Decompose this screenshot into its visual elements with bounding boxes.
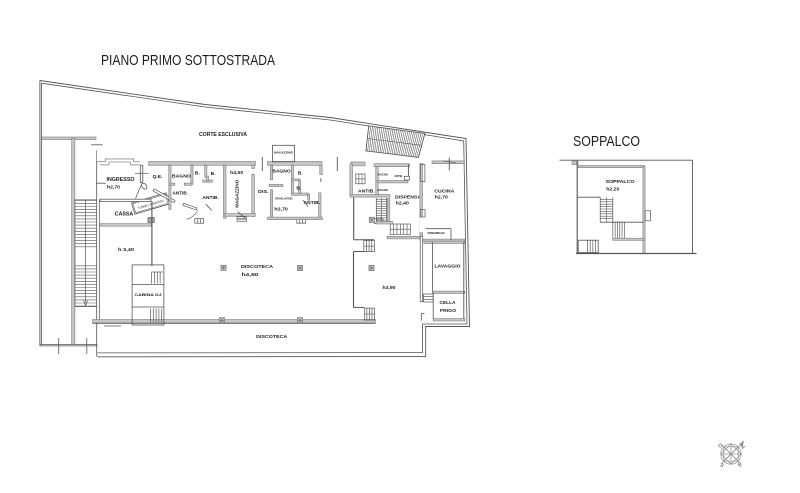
svg-text:h2,70: h2,70 [107,185,120,190]
svg-text:DIS.: DIS. [258,189,269,194]
svg-text:h2,40: h2,40 [396,201,409,206]
svg-text:DISPENSA: DISPENSA [395,194,421,200]
svg-text:ANTIB.: ANTIB. [358,188,375,193]
svg-text:MAGAZZINO: MAGAZZINO [234,179,239,208]
svg-text:SOPPALCO: SOPPALCO [606,179,635,185]
svg-text:BAGNO: BAGNO [377,188,388,192]
svg-text:Q.E.: Q.E. [153,174,163,180]
svg-text:h2,20: h2,20 [606,187,619,192]
svg-text:INGRESSO: INGRESSO [107,177,135,183]
svg-text:SOPPALCO: SOPPALCO [573,133,640,150]
svg-text:h4,50: h4,50 [230,170,243,175]
svg-text:BAGNO: BAGNO [172,173,191,178]
svg-text:B.: B. [211,171,216,176]
svg-text:ANTIB.: ANTIB. [202,195,219,200]
svg-text:CASSA: CASSA [115,212,134,218]
svg-text:h3,90: h3,90 [383,285,396,290]
svg-text:B.: B. [296,186,301,191]
svg-text:h2,70: h2,70 [274,206,288,211]
svg-text:LAVAGGIO: LAVAGGIO [435,263,461,268]
svg-text:h4,50: h4,50 [242,272,260,277]
svg-text:BAGNO: BAGNO [272,169,291,174]
svg-text:CORTE ESCLUSIVA: CORTE ESCLUSIVA [199,132,247,138]
svg-text:DISCOTECA: DISCOTECA [241,264,274,270]
svg-text:PIANO PRIMO SOTTOSTRADA: PIANO PRIMO SOTTOSTRADA [101,52,275,69]
svg-text:ANTIB: ANTIB [394,174,402,178]
svg-text:B.: B. [195,170,200,175]
svg-text:CABINA DJ: CABINA DJ [135,292,162,297]
svg-text:DISCOTECA: DISCOTECA [256,334,288,340]
svg-text:h 3,40: h 3,40 [118,247,135,252]
svg-text:CELLA: CELLA [440,300,457,305]
svg-text:B.: B. [298,171,303,176]
svg-text:ANTIB.: ANTIB. [172,191,188,196]
svg-text:FRIGO: FRIGO [440,308,456,313]
svg-text:CUCINA: CUCINA [434,188,455,193]
svg-text:SPOGLIATOIO: SPOGLIATOIO [275,197,293,201]
svg-text:MAGAZZINO: MAGAZZINO [274,150,294,154]
svg-text:DISBRIGO: DISBRIGO [428,231,446,235]
svg-text:h2,70: h2,70 [435,194,448,199]
svg-text:BAGNO: BAGNO [377,173,388,177]
